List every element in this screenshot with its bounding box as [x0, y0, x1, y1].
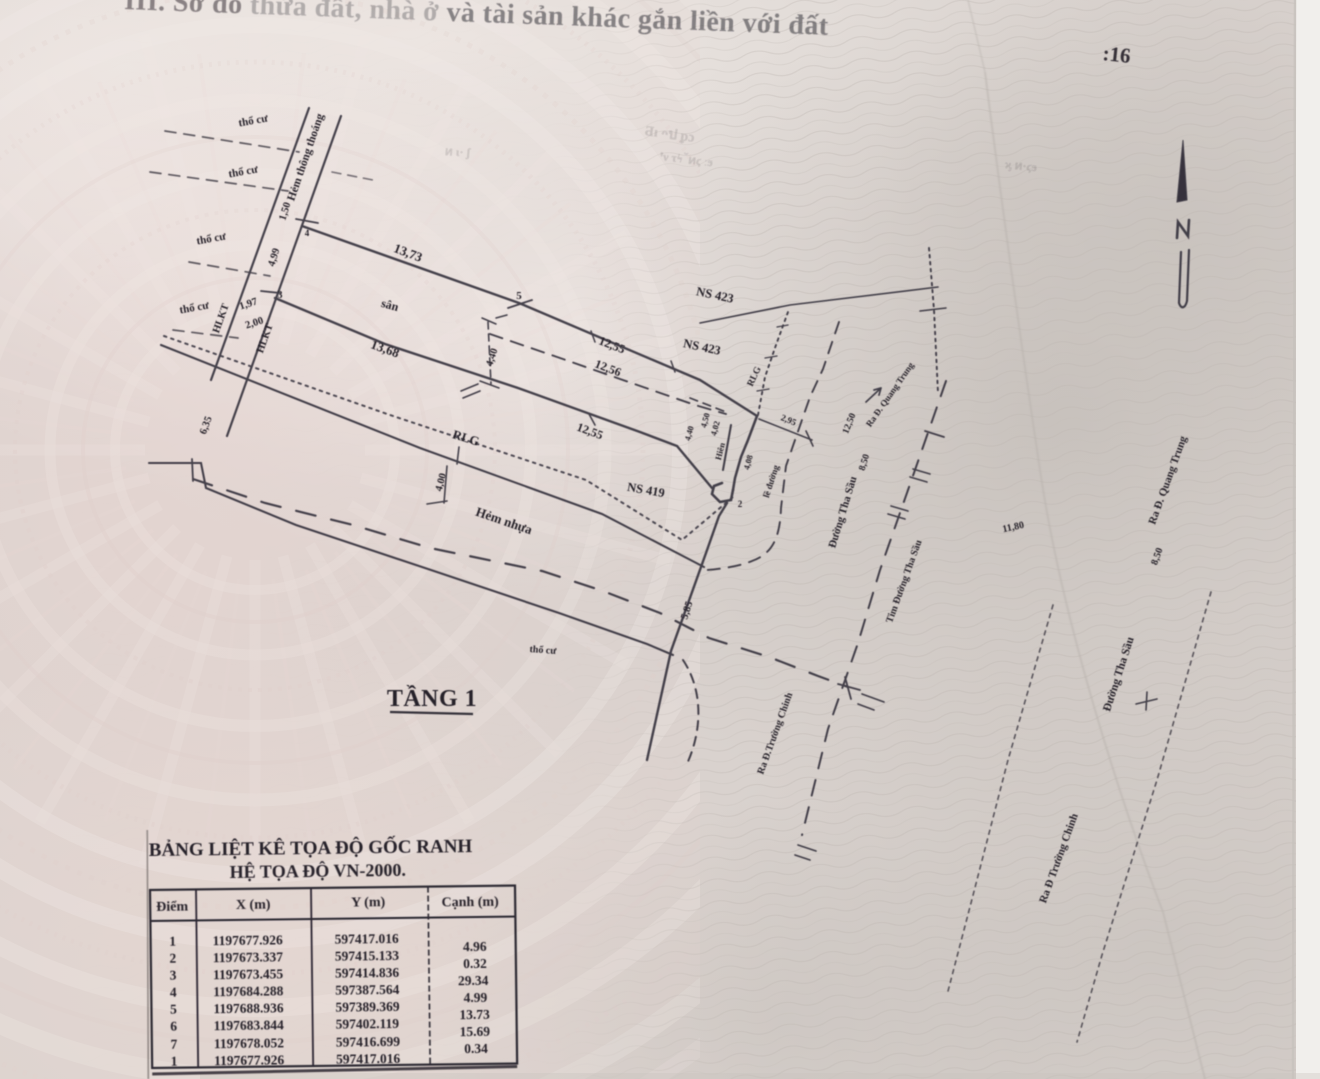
svg-text:Cạnh (m): Cạnh (m): [442, 895, 500, 911]
svg-text:4: 4: [170, 985, 177, 1000]
svg-text:4: 4: [305, 228, 310, 238]
svg-text:1: 1: [171, 1054, 178, 1069]
svg-text:X (m): X (m): [236, 898, 271, 913]
svg-text:1197688.936: 1197688.936: [213, 1000, 284, 1016]
svg-text:7: 7: [170, 1037, 177, 1052]
svg-text:Điểm: Điểm: [156, 900, 188, 915]
svg-text:1197677.926: 1197677.926: [213, 932, 284, 948]
svg-text:thổ cư: thổ cư: [529, 644, 558, 657]
svg-text:597415.133: 597415.133: [335, 948, 400, 964]
svg-text:597389.369: 597389.369: [335, 999, 400, 1015]
svg-text:597416.699: 597416.699: [336, 1034, 401, 1050]
svg-text:15.69: 15.69: [459, 1024, 490, 1039]
svg-text:597387.564: 597387.564: [335, 982, 400, 998]
svg-text:1197673.455: 1197673.455: [213, 966, 284, 982]
svg-text:1: 1: [169, 934, 176, 949]
svg-text:1197683.844: 1197683.844: [214, 1017, 285, 1033]
svg-text:2: 2: [738, 499, 743, 509]
svg-text:BẢNG LIỆT KÊ TỌA ĐỘ GỐC RANH: BẢNG LIỆT KÊ TỌA ĐỘ GỐC RANH: [149, 835, 473, 861]
svg-text:1197673.337: 1197673.337: [213, 949, 284, 965]
svg-text:2: 2: [169, 951, 176, 966]
svg-text:Y (m): Y (m): [351, 895, 386, 910]
svg-text:3: 3: [278, 290, 283, 301]
svg-text:4.96: 4.96: [463, 939, 487, 954]
svg-text:TẦNG 1: TẦNG 1: [387, 685, 477, 712]
svg-text:HỆ TỌA ĐỘ VN-2000.: HỆ TỌA ĐỘ VN-2000.: [229, 859, 406, 882]
svg-text:597414.836: 597414.836: [335, 965, 400, 981]
svg-text:4.99: 4.99: [463, 990, 487, 1005]
svg-text:0.32: 0.32: [463, 956, 487, 971]
svg-text:5: 5: [516, 290, 522, 302]
svg-text:1197677.926: 1197677.926: [214, 1052, 285, 1068]
svg-text:597402.119: 597402.119: [336, 1016, 400, 1032]
svg-text::16: :16: [1101, 41, 1131, 68]
svg-text:29.34: 29.34: [458, 973, 489, 988]
svg-text:1197678.052: 1197678.052: [214, 1035, 285, 1051]
svg-text:5: 5: [170, 1002, 177, 1017]
svg-text:3: 3: [170, 968, 177, 983]
svg-text:ͷ ι· ʃ: ͷ ι· ʃ: [445, 144, 472, 160]
svg-text:13.73: 13.73: [459, 1007, 490, 1022]
svg-text:597417.016: 597417.016: [336, 1051, 401, 1067]
svg-text:6: 6: [170, 1019, 177, 1034]
svg-text:1197684.288: 1197684.288: [213, 983, 284, 999]
svg-text:0.34: 0.34: [464, 1041, 488, 1056]
svg-text:597417.016: 597417.016: [335, 931, 400, 947]
